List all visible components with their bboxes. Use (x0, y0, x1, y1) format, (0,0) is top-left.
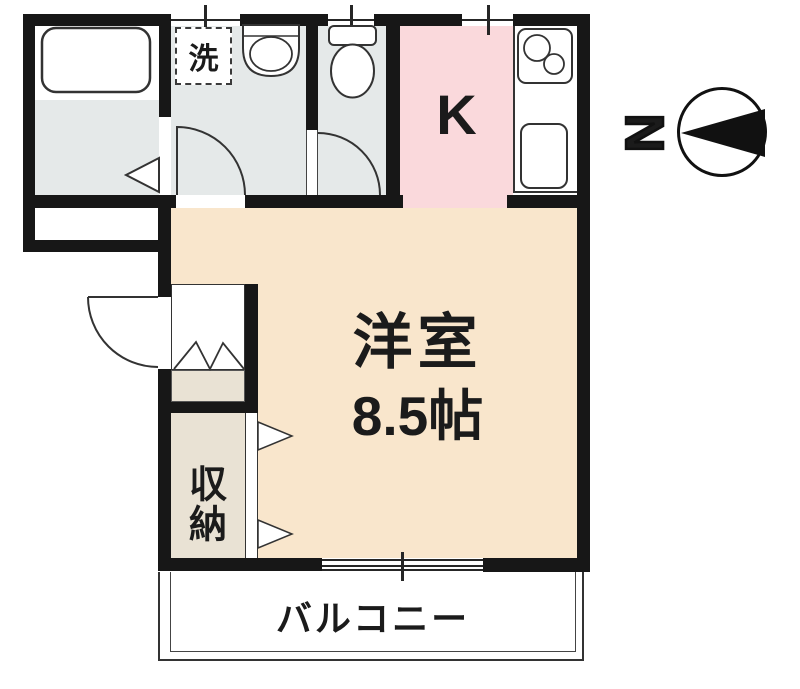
toilet-bowl (331, 45, 374, 98)
storage-door-swing-bottom (258, 520, 292, 548)
bathroom-folding-door (126, 158, 159, 192)
entry-door-swing (88, 297, 158, 367)
room-size-label: 8.5帖 (258, 380, 577, 442)
washbasin-bowl (250, 37, 292, 71)
kitchen-sink (521, 124, 567, 188)
balcony-label: バルコニー (170, 592, 576, 640)
entry-closet-folding-door (174, 342, 244, 369)
bathtub (42, 28, 150, 92)
laundry-pan-box: 洗 (175, 27, 232, 85)
storage-label: 収納 (177, 444, 231, 564)
toilet-tank (329, 26, 376, 45)
room-name-label: 洋室 (258, 303, 577, 371)
stove-burner-small (544, 54, 564, 74)
washroom-door-swing (177, 127, 245, 195)
laundry-label: 洗 (189, 34, 219, 78)
floor-plan: 洗 K 洋室 8.5帖 収納 バルコニー N (0, 0, 800, 689)
compass-north-letter: N (614, 105, 674, 161)
north-arrow-icon (681, 109, 765, 157)
kitchen-label: K (400, 82, 513, 146)
toilet-door-swing (318, 133, 380, 195)
